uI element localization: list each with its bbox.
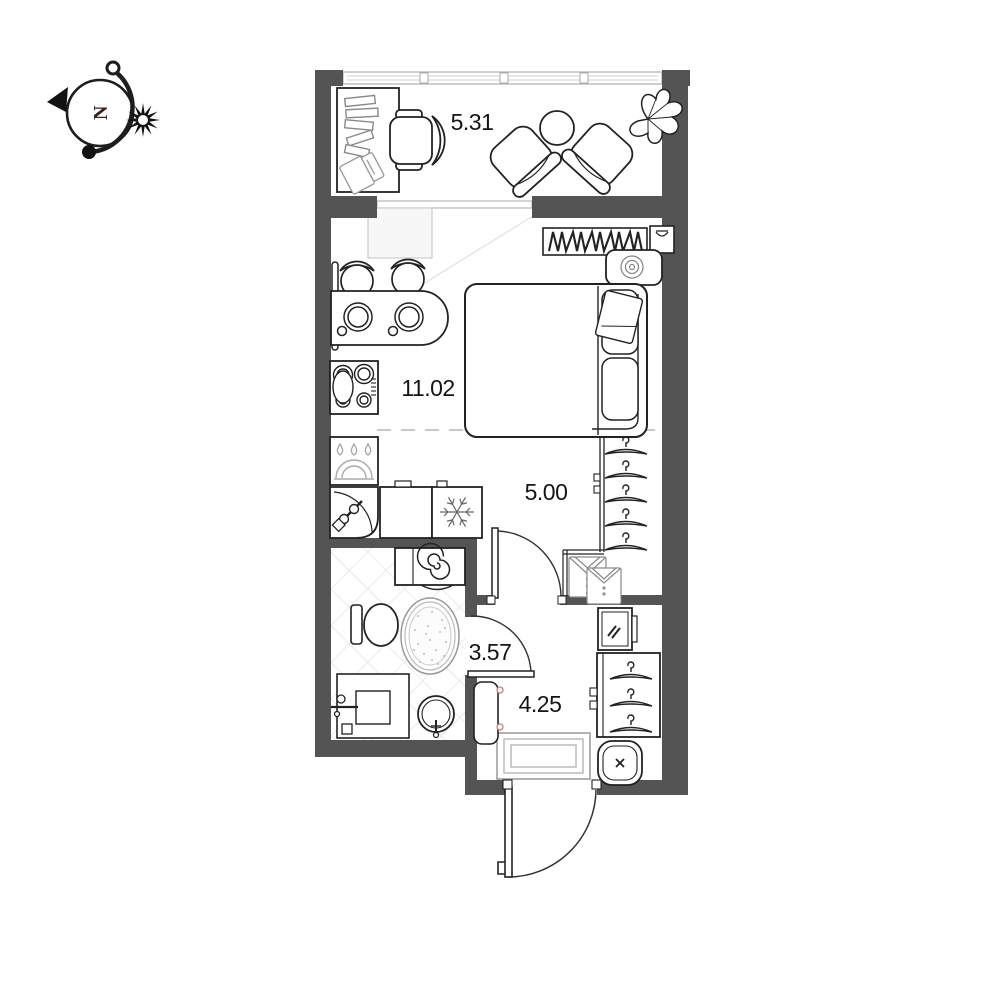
wall-balcony-left bbox=[331, 196, 377, 218]
corridor-wardrobe bbox=[594, 437, 647, 552]
entrance-door bbox=[498, 780, 601, 877]
door-jamb bbox=[592, 780, 601, 789]
room-label-corridor: 5.00 bbox=[525, 479, 568, 505]
stove bbox=[330, 361, 378, 414]
wall-bathroom-top bbox=[331, 538, 477, 548]
door-jamb bbox=[487, 596, 495, 604]
compass-arc-end bbox=[82, 145, 96, 159]
wall-balcony-right bbox=[532, 196, 664, 218]
vent-box bbox=[650, 226, 674, 253]
balcony-glazing-window bbox=[343, 72, 662, 84]
sleeping-zone bbox=[465, 226, 674, 437]
bed bbox=[465, 284, 647, 437]
compass-arc-start bbox=[107, 62, 119, 74]
room-label-entry-hall: 4.25 bbox=[519, 691, 562, 717]
drain-square bbox=[342, 724, 352, 734]
floorplan-drawing: N bbox=[0, 0, 981, 1000]
room-label-balcony: 5.31 bbox=[451, 109, 494, 135]
compass: N bbox=[47, 62, 160, 159]
wall-left bbox=[315, 70, 331, 757]
shirt-shelf bbox=[563, 550, 621, 604]
bar-stool bbox=[391, 260, 425, 295]
hangers bbox=[605, 437, 647, 550]
floorplan-page: N bbox=[0, 0, 981, 1000]
shower-vanity bbox=[331, 674, 409, 738]
washing-machine bbox=[395, 544, 465, 590]
pot-icon bbox=[333, 371, 353, 403]
door-leaf bbox=[492, 528, 498, 598]
door-leaf bbox=[468, 671, 534, 677]
room-label-living-kitchen: 11.02 bbox=[401, 375, 454, 401]
hall-wardrobe bbox=[590, 653, 660, 737]
window-sill bbox=[368, 208, 432, 258]
coffee-table bbox=[540, 111, 574, 145]
nightstand bbox=[606, 250, 662, 285]
pouf bbox=[598, 741, 642, 785]
bathtub bbox=[401, 598, 459, 674]
counter-tab bbox=[395, 481, 411, 487]
door-handle bbox=[498, 862, 505, 874]
doormat bbox=[497, 733, 590, 779]
folded-shirt-icon bbox=[587, 568, 621, 604]
room-label-bathroom: 3.57 bbox=[469, 639, 512, 665]
office-chair bbox=[390, 110, 445, 170]
door-leaf bbox=[505, 787, 512, 877]
mirror bbox=[598, 608, 637, 650]
compass-north-label: N bbox=[90, 105, 112, 120]
shoe-bench bbox=[474, 682, 503, 744]
balcony-zone bbox=[337, 88, 682, 200]
corridor-door bbox=[487, 528, 566, 604]
compass-arrow-icon bbox=[47, 87, 68, 112]
wall-bathroom-right-upper bbox=[465, 548, 477, 617]
wall-bathroom-bottom bbox=[331, 740, 477, 757]
toilet bbox=[351, 604, 398, 646]
dishwasher bbox=[330, 437, 378, 485]
pillow bbox=[602, 358, 638, 420]
fridge bbox=[432, 481, 482, 538]
entry-hall-zone bbox=[474, 608, 660, 785]
door-jamb bbox=[558, 596, 566, 604]
wall-right bbox=[662, 70, 688, 795]
kitchen-sink bbox=[330, 487, 378, 538]
door-jamb bbox=[503, 780, 512, 789]
kitchen-counter bbox=[380, 487, 432, 538]
